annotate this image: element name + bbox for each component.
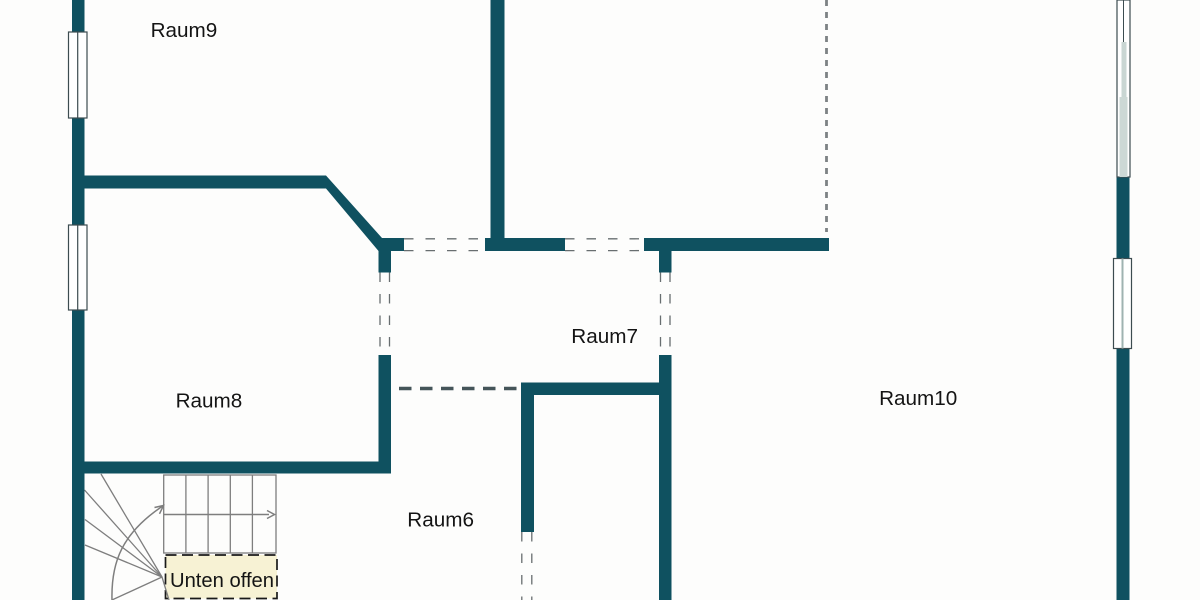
svg-text:Raum7: Raum7: [571, 325, 638, 348]
svg-text:Unten offen: Unten offen: [170, 570, 274, 592]
svg-text:Raum9: Raum9: [151, 19, 218, 42]
svg-text:Raum10: Raum10: [879, 387, 957, 410]
svg-text:Raum6: Raum6: [407, 509, 474, 532]
svg-text:Raum8: Raum8: [176, 390, 243, 413]
